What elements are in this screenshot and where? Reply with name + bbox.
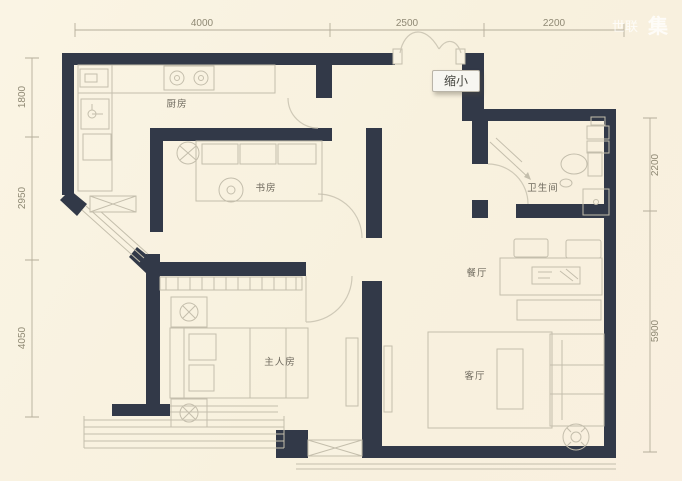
tv-panel — [384, 346, 392, 412]
room-label-dining-room: 餐厅 — [466, 267, 487, 279]
dimension-label-right-2200: 2200 — [650, 153, 661, 176]
pillow — [189, 365, 214, 391]
dimension-label-left-4050: 4050 — [17, 326, 28, 349]
bathroom-door-arc — [488, 164, 528, 204]
dining-furniture — [500, 239, 602, 320]
room-label-bathroom: 卫生间 — [527, 182, 559, 194]
kitchen-door-arc — [288, 98, 318, 128]
dimension-label-right-5900: 5900 — [650, 319, 661, 342]
zoom-out-button[interactable]: 缩小 — [432, 70, 480, 92]
room-label-master-bedroom: 主人房 — [264, 356, 296, 368]
dining-chair — [566, 240, 601, 258]
dimension-lines-left: 1800 2950 4050 — [17, 58, 39, 417]
dimension-lines-right: 2200 5900 — [643, 118, 661, 452]
bathroom-furniture — [490, 117, 609, 215]
dimension-label-top-4000: 4000 — [191, 18, 214, 29]
entrance-door-arc-left — [400, 32, 439, 53]
dining-chair — [514, 239, 548, 257]
living-furniture — [384, 332, 604, 450]
dimension-label-top-2200: 2200 — [543, 18, 566, 29]
study-furniture — [177, 141, 322, 202]
study-door-arc — [318, 194, 362, 238]
kitchen-appliance — [80, 69, 108, 87]
dimension-label-top-2500: 2500 — [396, 18, 419, 29]
wardrobe — [160, 277, 302, 290]
bedroom-furniture — [160, 277, 358, 427]
shower — [490, 138, 522, 166]
floorplan-viewer: 4000 2500 2200 1800 2950 4050 2200 5900 — [0, 0, 682, 481]
dimension-lines-top: 4000 2500 2200 — [75, 18, 624, 37]
kitchen-cabinet — [83, 134, 111, 160]
living-rug — [428, 332, 552, 428]
coffee-table — [497, 349, 523, 409]
stove — [164, 66, 214, 90]
room-label-kitchen: 厨房 — [166, 98, 187, 110]
floorplan-svg: 4000 2500 2200 1800 2950 4050 2200 5900 — [0, 0, 682, 481]
walls-group — [60, 53, 616, 458]
study-stool — [219, 178, 243, 202]
room-label-living-room: 客厅 — [464, 370, 485, 382]
bedroom-tv-cabinet — [346, 338, 358, 406]
toilet — [561, 154, 587, 174]
bedroom-door-arc — [306, 276, 352, 322]
pillow — [189, 334, 216, 360]
dimension-label-left-1800: 1800 — [17, 85, 28, 108]
room-label-study: 书房 — [255, 182, 276, 194]
dining-table — [500, 258, 602, 295]
dimension-label-left-2950: 2950 — [17, 186, 28, 209]
living-sofa — [550, 334, 604, 426]
dining-bench — [517, 300, 601, 320]
